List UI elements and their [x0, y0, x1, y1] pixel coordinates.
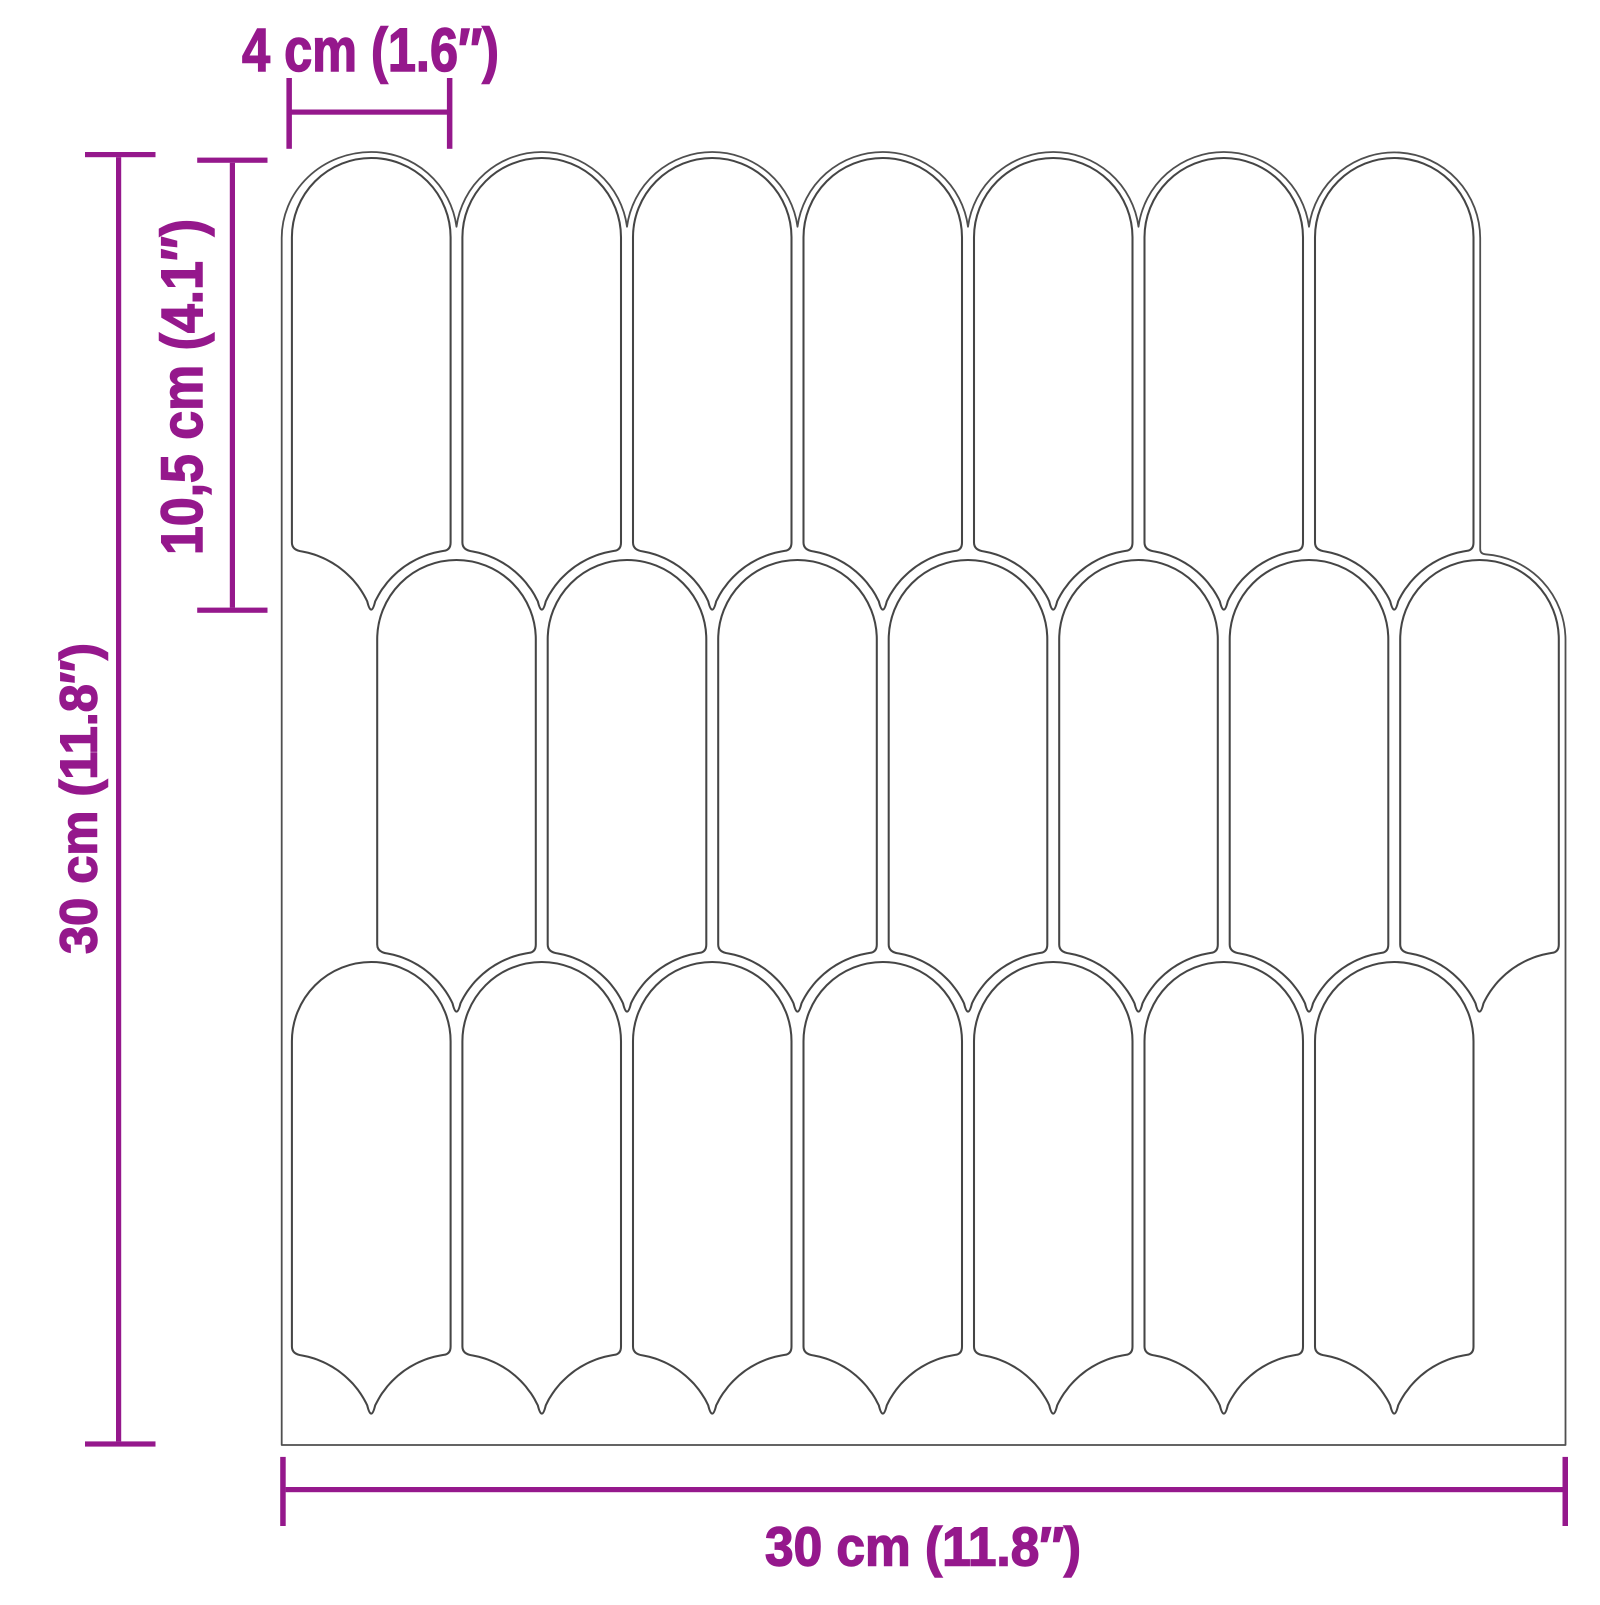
svg-text:10,5 cm (4.1″): 10,5 cm (4.1″): [150, 219, 215, 555]
svg-text:30 cm (11.8″): 30 cm (11.8″): [51, 643, 109, 954]
svg-text:4 cm (1.6″): 4 cm (1.6″): [242, 16, 499, 85]
svg-text:30 cm (11.8″): 30 cm (11.8″): [765, 1516, 1081, 1578]
